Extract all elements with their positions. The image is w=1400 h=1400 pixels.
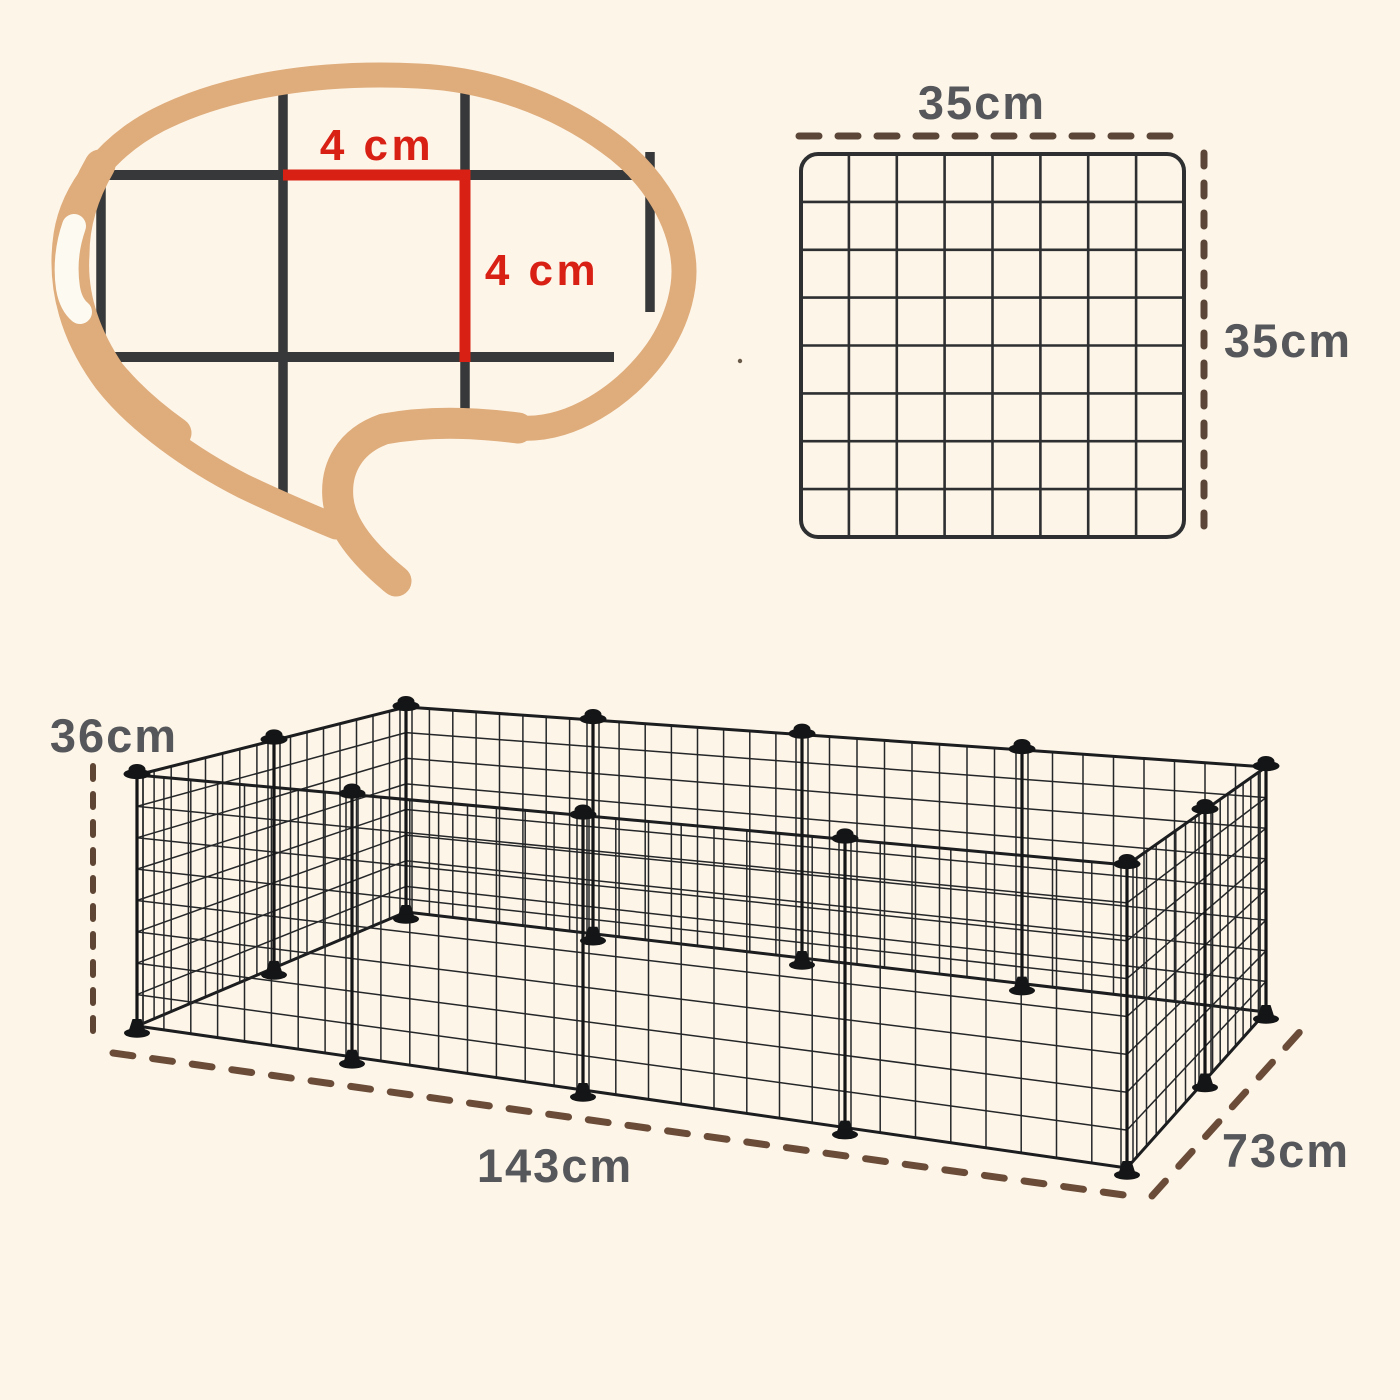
svg-text:143cm: 143cm [477, 1139, 633, 1192]
svg-text:36cm: 36cm [50, 709, 178, 762]
svg-text:73cm: 73cm [1222, 1124, 1350, 1177]
svg-text:4 cm: 4 cm [485, 246, 599, 295]
svg-text:35cm: 35cm [1224, 314, 1352, 367]
svg-text:35cm: 35cm [918, 76, 1046, 129]
svg-text:4 cm: 4 cm [320, 121, 434, 170]
